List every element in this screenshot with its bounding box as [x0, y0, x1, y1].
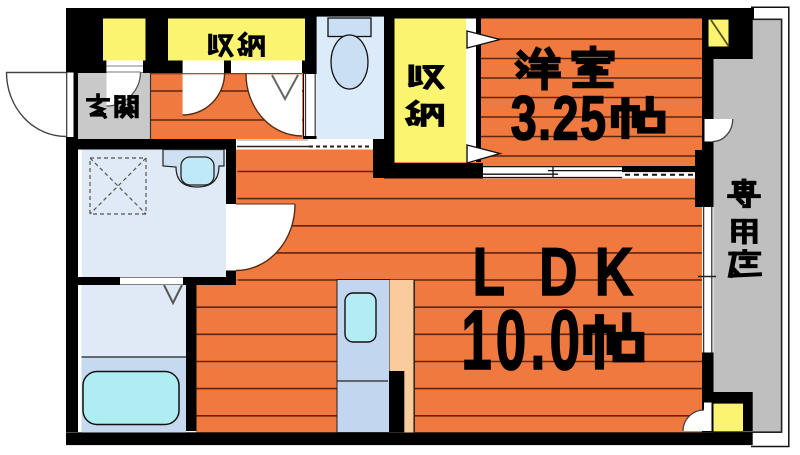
svg-text:K: K — [595, 234, 633, 310]
svg-text:3.25: 3.25 — [511, 83, 608, 153]
svg-text:10.0: 10.0 — [461, 294, 584, 387]
